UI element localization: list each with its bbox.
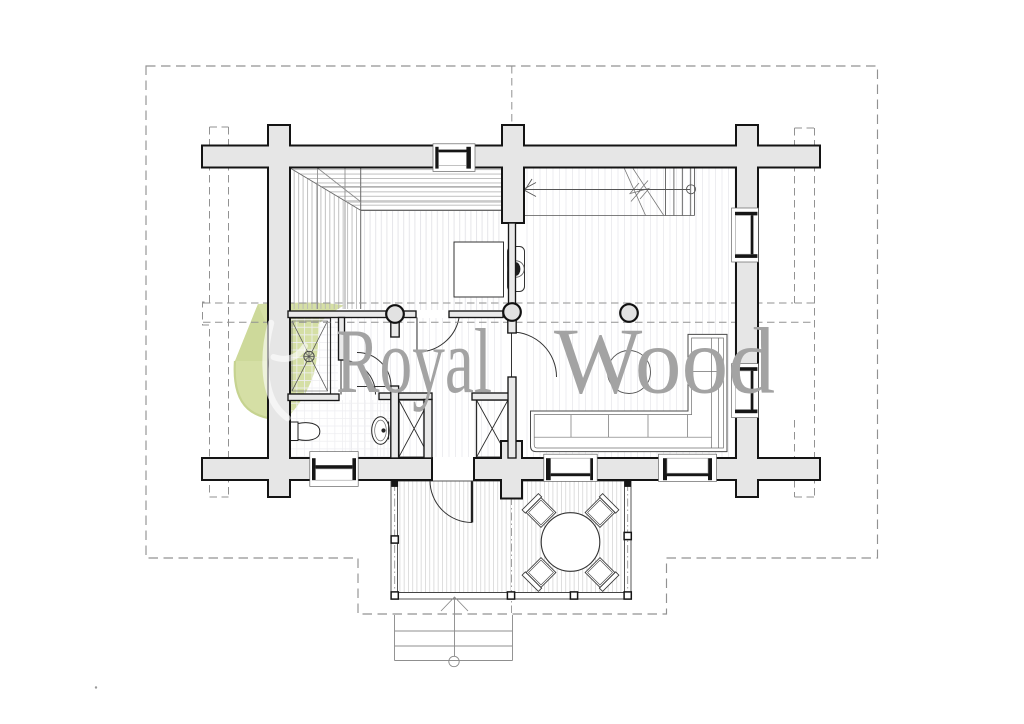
svg-text:Wood: Wood [554,310,775,414]
svg-text:Royal: Royal [336,310,492,412]
